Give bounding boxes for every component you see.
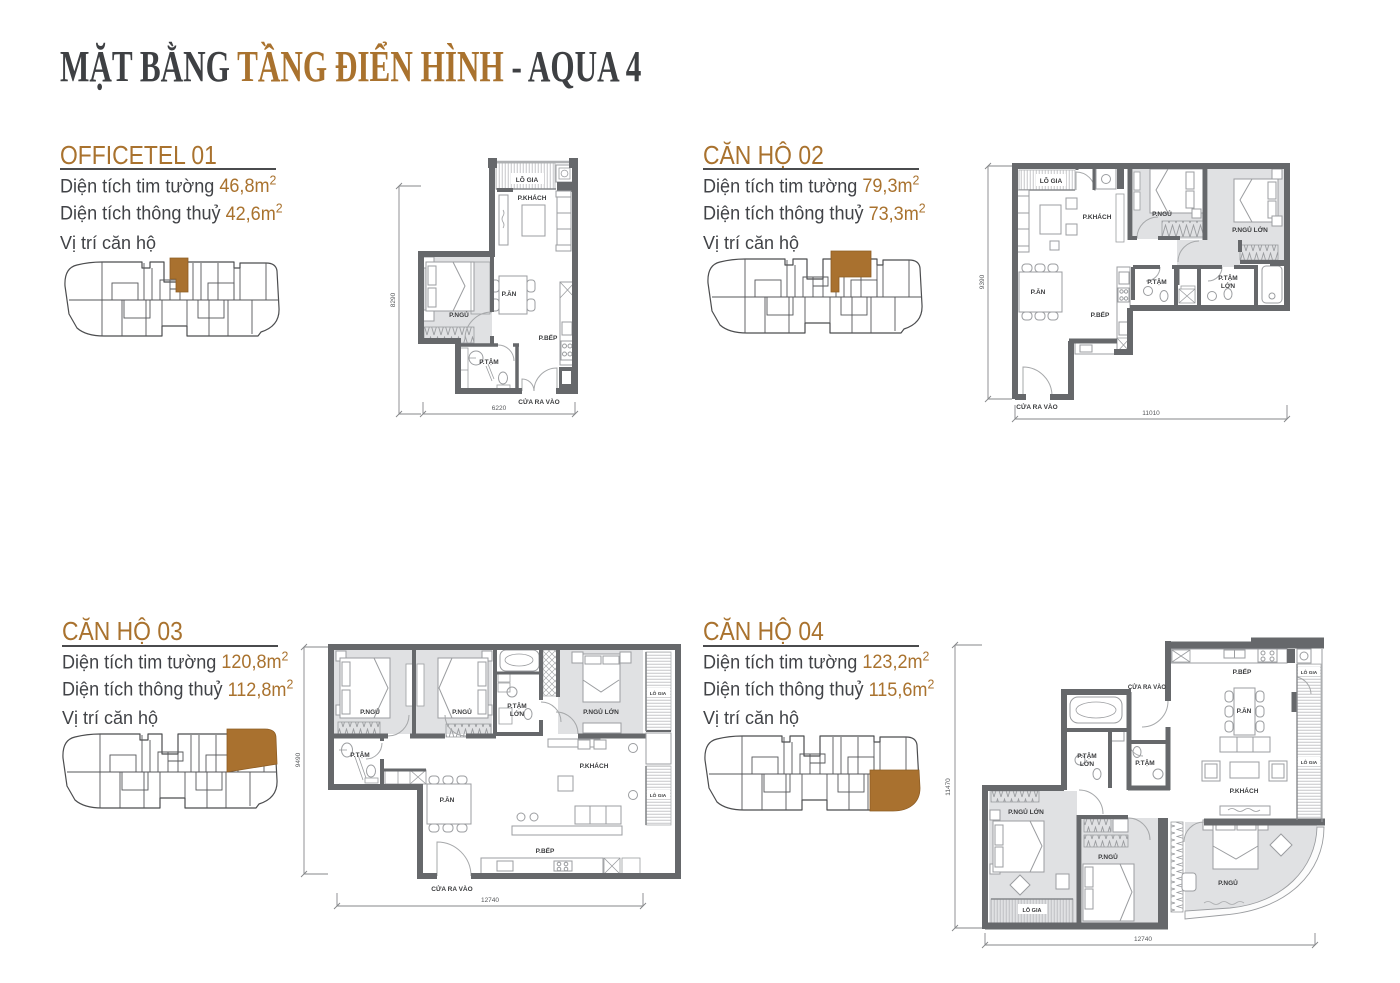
svg-text:9390: 9390 (979, 274, 986, 289)
svg-text:P.KHÁCH: P.KHÁCH (1083, 212, 1112, 221)
svg-text:LỚN: LỚN (510, 709, 525, 718)
svg-text:LÔ GIA: LÔ GIA (516, 175, 539, 184)
svg-text:CỬA RA VÀO: CỬA RA VÀO (1016, 402, 1057, 411)
svg-text:P.TẬM: P.TẬM (479, 357, 498, 366)
svg-text:P.KHÁCH: P.KHÁCH (580, 761, 609, 770)
svg-text:P.BẾP: P.BẾP (539, 332, 558, 342)
svg-text:P.ĂN: P.ĂN (1031, 287, 1046, 296)
svg-text:P.ĂN: P.ĂN (440, 795, 455, 804)
svg-text:8290: 8290 (390, 292, 397, 307)
svg-text:P.NGỦ: P.NGỦ (1098, 852, 1118, 861)
svg-text:P.TẬM: P.TẬM (1077, 751, 1096, 760)
svg-text:P.KHÁCH: P.KHÁCH (1230, 786, 1259, 795)
svg-text:LÔ GIA: LÔ GIA (1040, 176, 1063, 185)
svg-text:CỬA RA VÀO: CỬA RA VÀO (431, 884, 472, 893)
svg-text:P.ĂN: P.ĂN (1237, 706, 1252, 715)
svg-text:P.NGỦ LỚN: P.NGỦ LỚN (583, 707, 619, 716)
svg-text:P.NGỦ LỚN: P.NGỦ LỚN (1232, 225, 1268, 234)
svg-text:P.NGỦ: P.NGỦ (1218, 878, 1238, 887)
svg-text:LỚN: LỚN (1080, 759, 1095, 768)
svg-text:P.NGỦ LỚN: P.NGỦ LỚN (1008, 807, 1044, 816)
svg-text:9490: 9490 (295, 752, 302, 767)
svg-text:P.NGỦ: P.NGỦ (1152, 209, 1172, 218)
svg-text:P.BẾP: P.BẾP (1091, 309, 1110, 319)
svg-text:11470: 11470 (945, 778, 952, 796)
svg-text:11010: 11010 (1142, 410, 1160, 417)
svg-text:P.BẾP: P.BẾP (1233, 666, 1252, 676)
svg-text:P.NGỦ: P.NGỦ (449, 310, 469, 319)
svg-text:LỚN: LỚN (1221, 281, 1236, 290)
svg-text:P.KHÁCH: P.KHÁCH (518, 193, 547, 202)
svg-text:P.NGỦ: P.NGỦ (360, 707, 380, 716)
svg-text:P.BẾP: P.BẾP (536, 845, 555, 855)
svg-text:CỬA RA VÀO: CỬA RA VÀO (1128, 684, 1167, 691)
svg-text:12740: 12740 (1134, 936, 1152, 943)
svg-text:P.TẬM: P.TẬM (507, 701, 526, 710)
svg-text:6220: 6220 (492, 405, 507, 412)
svg-text:CỬA RA VÀO: CỬA RA VÀO (518, 397, 559, 406)
svg-text:P.ĂN: P.ĂN (502, 289, 517, 298)
svg-text:LÔ GIA: LÔ GIA (1023, 906, 1042, 914)
svg-text:P.TẬM: P.TẬM (1147, 277, 1166, 286)
svg-text:P.TẬM: P.TẬM (1135, 758, 1154, 767)
svg-text:P.NGỦ: P.NGỦ (452, 707, 472, 716)
svg-text:12740: 12740 (481, 897, 499, 904)
svg-text:P.TẬM: P.TẬM (1218, 273, 1237, 282)
svg-text:P.TẬM: P.TẬM (350, 750, 369, 759)
